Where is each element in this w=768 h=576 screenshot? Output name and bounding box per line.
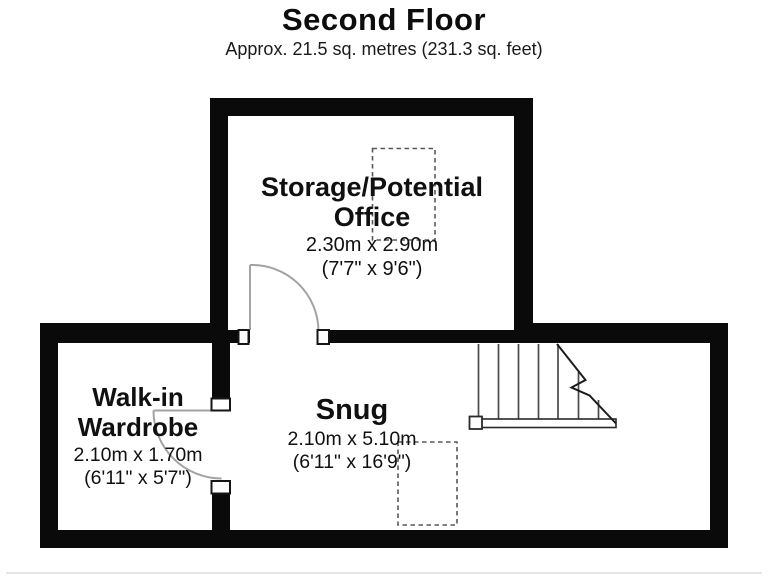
wardrobe-dims-metric: 2.10m x 1.70m	[28, 444, 248, 467]
image-bottom-edge	[6, 572, 762, 574]
office-door-jamb-right	[318, 330, 330, 344]
office-door-jamb-left	[239, 330, 249, 344]
stairs-break-line-icon	[557, 344, 616, 424]
stairs-rail	[473, 419, 617, 428]
wardrobe-name-line1: Walk-in	[28, 382, 248, 412]
office-dims-metric: 2.30m x 2.90m	[212, 234, 532, 258]
snug-dims-metric: 2.10m x 5.10m	[232, 428, 472, 451]
room-label-wardrobe: Walk-in Wardrobe 2.10m x 1.70m (6'11" x …	[28, 382, 248, 490]
office-name-line2: Office	[212, 202, 532, 232]
office-dims-imperial: (7'7" x 9'6")	[212, 258, 532, 282]
snug-name: Snug	[232, 394, 472, 426]
wardrobe-dims-imperial: (6'11" x 5'7")	[28, 467, 248, 490]
office-name-line1: Storage/Potential	[212, 172, 532, 202]
wardrobe-name-line2: Wardrobe	[28, 412, 248, 442]
snug-dims-imperial: (6'11" x 16'9")	[232, 451, 472, 474]
floor-plan: Second Floor Approx. 21.5 sq. metres (23…	[0, 0, 768, 576]
room-label-snug: Snug 2.10m x 5.10m (6'11" x 16'9")	[232, 394, 472, 474]
room-label-office: Storage/Potential Office 2.30m x 2.90m (…	[212, 172, 532, 281]
